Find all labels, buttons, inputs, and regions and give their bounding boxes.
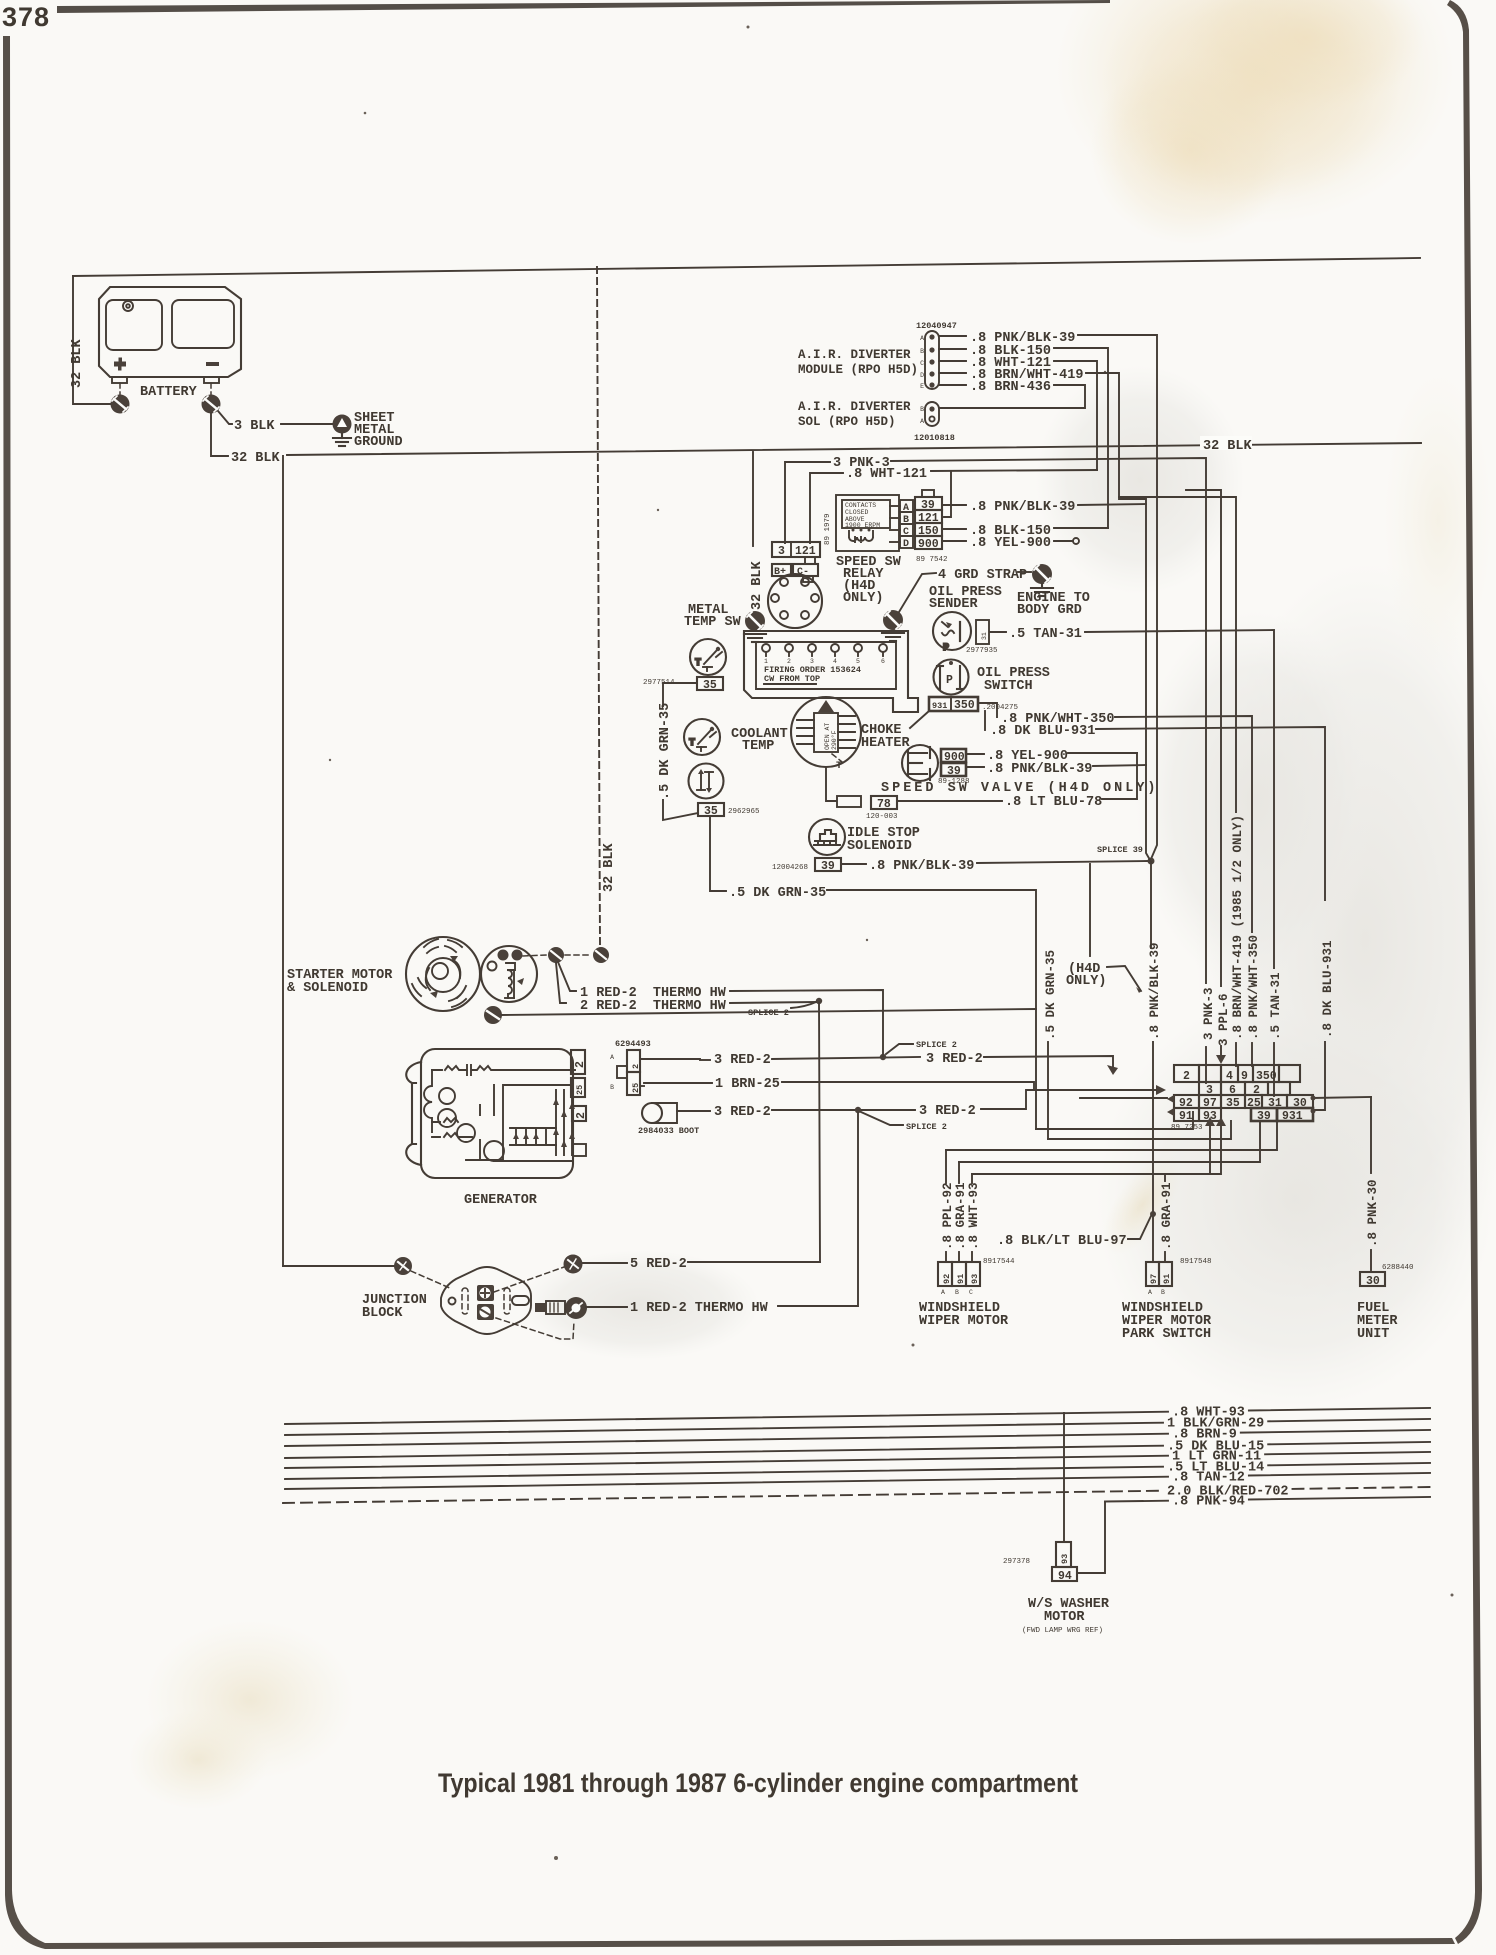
svg-text:.8 DK BLU-931: .8 DK BLU-931 xyxy=(1321,940,1335,1038)
svg-text:91: 91 xyxy=(1179,1110,1193,1123)
svg-text:MOTOR: MOTOR xyxy=(1044,1610,1085,1625)
svg-text:931: 931 xyxy=(932,701,947,711)
svg-text:93: 93 xyxy=(1060,1554,1070,1564)
svg-text:.8 BRN/WHT-419 (1985 1/2 ONLY): .8 BRN/WHT-419 (1985 1/2 ONLY) xyxy=(1231,815,1245,1040)
svg-text:BLOCK: BLOCK xyxy=(362,1306,403,1321)
svg-text:290°F: 290°F xyxy=(830,730,838,750)
svg-text:6: 6 xyxy=(881,658,885,665)
svg-text:.5 DK GRN-35: .5 DK GRN-35 xyxy=(658,703,673,800)
svg-text:35: 35 xyxy=(703,679,717,692)
svg-text:.5 TAN-31: .5 TAN-31 xyxy=(1009,627,1082,642)
svg-text:.8 PNK-94: .8 PNK-94 xyxy=(1172,1495,1245,1510)
svg-text:CLOSED: CLOSED xyxy=(845,509,869,516)
svg-text:35: 35 xyxy=(1226,1097,1240,1110)
svg-text:3 PNK-3: 3 PNK-3 xyxy=(1202,987,1216,1040)
svg-text:P: P xyxy=(943,643,949,654)
svg-text:4 GRD STRAP: 4 GRD STRAP xyxy=(938,568,1027,583)
svg-text:D: D xyxy=(903,539,909,550)
svg-text:30: 30 xyxy=(1366,1275,1380,1288)
svg-text:89 7542: 89 7542 xyxy=(916,556,948,564)
svg-text:25: 25 xyxy=(631,1083,641,1093)
svg-text:25: 25 xyxy=(575,1085,585,1095)
svg-text:A: A xyxy=(1148,1289,1152,1296)
svg-text:BODY GRD: BODY GRD xyxy=(1017,603,1082,618)
svg-text:T: T xyxy=(836,761,842,772)
svg-text:91: 91 xyxy=(1162,1274,1172,1284)
svg-text:C: C xyxy=(903,527,909,538)
svg-text:CONTACTS: CONTACTS xyxy=(845,502,876,509)
svg-text:2: 2 xyxy=(631,1064,641,1069)
svg-text:CW FROM TOP: CW FROM TOP xyxy=(764,674,820,684)
svg-text:B: B xyxy=(920,348,924,355)
svg-text:.8 PNK-30: .8 PNK-30 xyxy=(1366,1179,1380,1247)
svg-text:8917548: 8917548 xyxy=(1180,1258,1212,1266)
svg-text:T: T xyxy=(689,738,695,749)
svg-text:E: E xyxy=(920,383,924,390)
svg-text:MODULE (RPO H5D): MODULE (RPO H5D) xyxy=(798,363,918,377)
svg-text:A: A xyxy=(903,503,909,514)
svg-text:97: 97 xyxy=(1149,1274,1159,1284)
svg-text:378: 378 xyxy=(2,2,50,32)
svg-text:SPLICE 2: SPLICE 2 xyxy=(916,1040,957,1050)
svg-text:.8 BLK/LT BLU-97: .8 BLK/LT BLU-97 xyxy=(997,1234,1127,1249)
svg-text:2962965: 2962965 xyxy=(728,808,760,816)
svg-text:.5 DK GRN-35: .5 DK GRN-35 xyxy=(729,886,826,901)
svg-text:297378: 297378 xyxy=(1003,1558,1030,1566)
svg-text:2984033 BOOT: 2984033 BOOT xyxy=(638,1126,699,1136)
svg-text:A.I.R. DIVERTER: A.I.R. DIVERTER xyxy=(798,400,911,414)
svg-text:.5 DK GRN-35: .5 DK GRN-35 xyxy=(1044,950,1058,1040)
svg-text:T: T xyxy=(695,658,701,669)
svg-text:Typical 1981 through 1987 6-cy: Typical 1981 through 1987 6-cylinder eng… xyxy=(438,1768,1078,1798)
svg-text:94: 94 xyxy=(1058,1570,1072,1583)
svg-text:121: 121 xyxy=(795,545,816,558)
svg-text:12010818: 12010818 xyxy=(914,433,955,443)
svg-text:2 RED-2 THERMO HW: 2 RED-2 THERMO HW xyxy=(580,999,727,1014)
svg-text:1 RED-2 THERMO HW: 1 RED-2 THERMO HW xyxy=(630,1301,769,1316)
svg-text:121: 121 xyxy=(918,512,939,525)
svg-text:SPEED SW VALVE (H4D ONLY): SPEED SW VALVE (H4D ONLY) xyxy=(881,781,1159,796)
svg-text:3 RED-2: 3 RED-2 xyxy=(714,1105,771,1120)
svg-text:32 BLK: 32 BLK xyxy=(602,842,617,892)
svg-text:89 1979: 89 1979 xyxy=(824,513,832,545)
svg-text:1: 1 xyxy=(764,658,768,665)
svg-text:3 PPL-6: 3 PPL-6 xyxy=(1217,993,1231,1046)
svg-text:.8 WHT-121: .8 WHT-121 xyxy=(846,467,927,482)
svg-text:92: 92 xyxy=(942,1274,952,1284)
svg-text:SOLENOID: SOLENOID xyxy=(847,839,912,854)
svg-text:2977935: 2977935 xyxy=(966,647,998,655)
svg-text:39: 39 xyxy=(921,499,935,512)
svg-text:.8 PNK/BLK-39: .8 PNK/BLK-39 xyxy=(970,500,1075,515)
svg-text:B: B xyxy=(955,1289,959,1296)
svg-text:39: 39 xyxy=(947,765,961,778)
svg-text:PARK SWITCH: PARK SWITCH xyxy=(1122,1327,1211,1342)
svg-text:BATTERY: BATTERY xyxy=(140,385,198,400)
svg-text:ONLY): ONLY) xyxy=(1066,974,1107,989)
svg-text:SENDER: SENDER xyxy=(929,597,979,612)
svg-text:.8 BRN-436: .8 BRN-436 xyxy=(970,380,1051,395)
svg-text:32 BLK: 32 BLK xyxy=(1203,439,1253,454)
svg-text:.8 PNK/WHT-350: .8 PNK/WHT-350 xyxy=(1247,935,1261,1040)
svg-text:C: C xyxy=(920,360,924,367)
svg-text:.5 TAN-31: .5 TAN-31 xyxy=(1269,972,1283,1040)
svg-text:350: 350 xyxy=(954,699,975,712)
svg-text:.8 PNK/BLK-39: .8 PNK/BLK-39 xyxy=(1148,942,1162,1040)
svg-text:150: 150 xyxy=(918,525,939,538)
svg-text:78: 78 xyxy=(877,798,891,811)
svg-text:3 RED-2: 3 RED-2 xyxy=(714,1053,771,1068)
svg-text:SPLICE 2: SPLICE 2 xyxy=(906,1122,947,1132)
svg-text:SWITCH: SWITCH xyxy=(984,679,1033,694)
svg-text:B: B xyxy=(610,1084,614,1091)
svg-text:GROUND: GROUND xyxy=(354,435,403,450)
svg-text:2: 2 xyxy=(787,658,791,665)
svg-text:.8 PNK/BLK-39: .8 PNK/BLK-39 xyxy=(869,859,974,874)
svg-text:32 BLK: 32 BLK xyxy=(231,451,281,466)
svg-text:.8 WHT-93: .8 WHT-93 xyxy=(967,1182,981,1250)
svg-text:32 BLK: 32 BLK xyxy=(750,560,765,610)
svg-text:B: B xyxy=(920,406,924,413)
svg-text:ONLY): ONLY) xyxy=(843,591,884,606)
svg-text:91: 91 xyxy=(956,1274,966,1284)
svg-text:& SOLENOID: & SOLENOID xyxy=(287,981,368,996)
svg-text:900: 900 xyxy=(918,538,939,551)
svg-text:TEMP SW: TEMP SW xyxy=(684,615,742,630)
svg-text:93: 93 xyxy=(970,1274,980,1284)
svg-text:5 RED-2: 5 RED-2 xyxy=(630,1257,687,1272)
svg-text:3 BLK: 3 BLK xyxy=(234,419,275,434)
svg-text:A: A xyxy=(920,418,924,425)
svg-text:SOL (RPO H5D): SOL (RPO H5D) xyxy=(798,415,896,429)
svg-text:32 BLK: 32 BLK xyxy=(70,338,85,388)
svg-text:8917544: 8917544 xyxy=(983,1258,1015,1266)
svg-text:31: 31 xyxy=(981,632,988,640)
svg-text:2: 2 xyxy=(574,1061,587,1068)
svg-text:UNIT: UNIT xyxy=(1357,1327,1389,1342)
svg-text:.8 PPL-92: .8 PPL-92 xyxy=(941,1182,955,1250)
svg-text:39: 39 xyxy=(821,860,835,873)
svg-text:B: B xyxy=(903,515,909,526)
svg-text:SPLICE 39: SPLICE 39 xyxy=(1097,845,1143,855)
svg-text:TEMP: TEMP xyxy=(742,739,774,754)
svg-text:1 BRN-25: 1 BRN-25 xyxy=(715,1077,780,1092)
svg-text:A.I.R. DIVERTER: A.I.R. DIVERTER xyxy=(798,348,911,362)
svg-text:3 RED-2: 3 RED-2 xyxy=(919,1104,976,1119)
svg-text:.8 LT BLU-78: .8 LT BLU-78 xyxy=(1005,795,1102,810)
svg-text:.2004275: .2004275 xyxy=(982,704,1019,712)
svg-text:A: A xyxy=(920,335,924,342)
svg-text:GENERATOR: GENERATOR xyxy=(464,1193,538,1208)
svg-text:B: B xyxy=(1161,1289,1165,1296)
svg-text:A: A xyxy=(941,1289,945,1296)
svg-text:89 7253: 89 7253 xyxy=(1171,1124,1203,1132)
svg-text:3: 3 xyxy=(778,545,785,558)
svg-text:A: A xyxy=(610,1054,614,1061)
svg-text:HEATER: HEATER xyxy=(861,736,911,751)
svg-text:P: P xyxy=(946,674,953,687)
svg-text:120-003: 120-003 xyxy=(866,813,898,821)
svg-text:.8 GRA-91: .8 GRA-91 xyxy=(954,1182,968,1250)
svg-text:1900 ERPM: 1900 ERPM xyxy=(845,522,880,529)
svg-text:.8 DK BLU-931: .8 DK BLU-931 xyxy=(990,724,1095,739)
svg-text:C: C xyxy=(969,1289,973,1296)
svg-text:4: 4 xyxy=(833,658,837,665)
svg-text:.8 TAN-12: .8 TAN-12 xyxy=(1172,1471,1245,1486)
svg-text:12004268: 12004268 xyxy=(772,864,808,872)
svg-text:2: 2 xyxy=(575,1112,588,1119)
svg-text:D: D xyxy=(920,372,924,379)
svg-text:.8 GRA-91: .8 GRA-91 xyxy=(1160,1182,1174,1250)
svg-text:.8 PNK/BLK-39: .8 PNK/BLK-39 xyxy=(987,762,1092,777)
svg-text:WIPER MOTOR: WIPER MOTOR xyxy=(919,1314,1009,1329)
svg-text:3: 3 xyxy=(810,658,814,665)
svg-text:6288440: 6288440 xyxy=(1382,1264,1414,1272)
svg-text:6294493: 6294493 xyxy=(615,1039,651,1049)
svg-text:931: 931 xyxy=(1282,1110,1303,1123)
svg-text:5: 5 xyxy=(856,658,860,665)
svg-text:.8 YEL-900: .8 YEL-900 xyxy=(970,536,1051,551)
svg-text:(FWD LAMP WRG REF): (FWD LAMP WRG REF) xyxy=(1022,1627,1103,1635)
svg-text:35: 35 xyxy=(704,805,718,818)
svg-text:3 RED-2: 3 RED-2 xyxy=(926,1052,983,1067)
svg-text:2: 2 xyxy=(1183,1070,1190,1083)
svg-text:12040947: 12040947 xyxy=(916,321,957,331)
svg-text:OPEN AT: OPEN AT xyxy=(824,723,831,750)
